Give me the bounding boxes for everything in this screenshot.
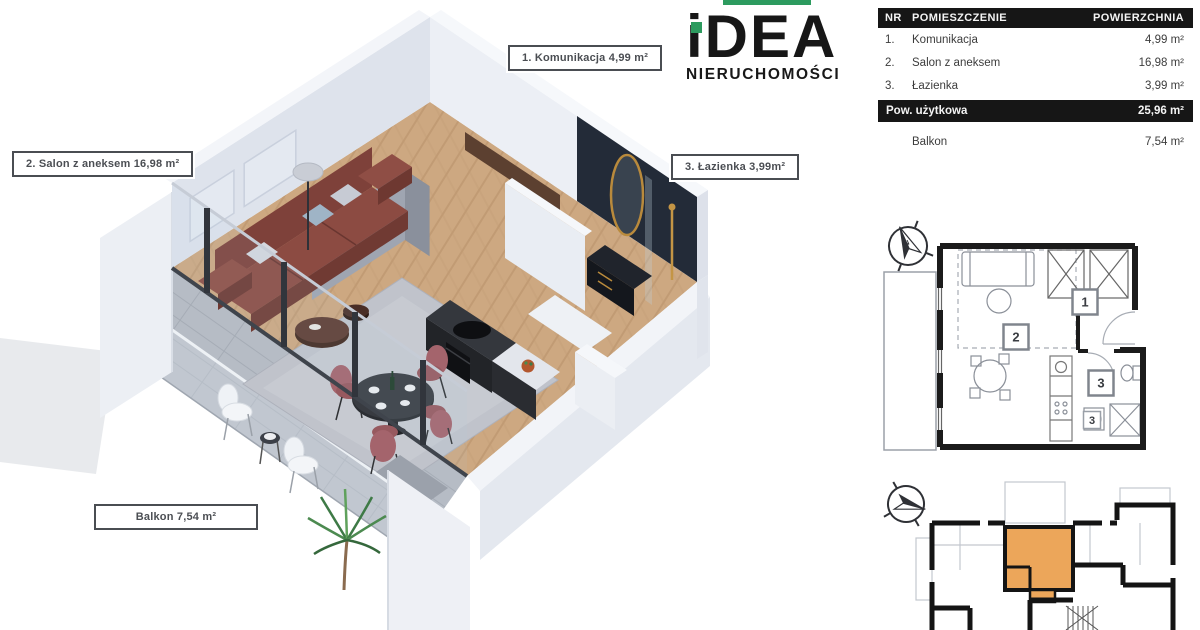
compass-icon: N [882,219,933,271]
area-table: NR POMIESZCZENIE POWIERZCHNIA 1. Komunik… [878,8,1193,153]
mirror [611,155,643,235]
row-room: Komunikacja [912,34,1145,46]
room-box-1: 1 [1081,295,1088,310]
label-komunikacja: 1. Komunikacja 4,99 m² [508,45,662,71]
outer-wall-left [100,192,172,418]
logo-green-dot-icon [691,22,702,33]
table-row: 3. Łazienka 3,99 m² [878,74,1193,97]
logo-brand: iDEA [686,8,876,65]
row-room: Łazienka [912,80,1145,92]
plan2d-walls [940,246,1146,447]
table-row: 1. Komunikacja 4,99 m² [878,28,1193,51]
row-nr: 1. [878,34,912,46]
logo-subtitle: NIERUCHOMOŚCI [686,66,876,84]
floorplan-3d [0,0,820,630]
balkon-area: 7,54 m² [1145,136,1193,148]
logo: iDEA NIERUCHOMOŚCI [686,8,876,84]
balkon-label: Balkon [912,136,1145,148]
floorplan-2d: N [870,198,1200,460]
header-room: POMIESZCZENIE [912,12,1093,24]
plan2d-furniture [958,250,1142,441]
header-nr: NR [878,12,912,24]
stair-core [1066,606,1098,630]
cooktop [453,321,491,339]
table-balkon-row: Balkon 7,54 m² [878,130,1193,153]
row-area: 16,98 m² [1139,57,1193,69]
row-nr: 2. [878,57,912,69]
label-balkon: Balkon 7,54 m² [94,504,258,530]
neighbour-slab [0,338,115,474]
row-room: Salon z aneksem [912,57,1139,69]
table-header: NR POMIESZCZENIE POWIERZCHNIA [878,8,1193,28]
summary-label: Pow. użytkowa [878,105,1138,117]
plan2d-balcony [884,272,936,450]
summary-area: 25,96 m² [1138,105,1193,117]
header-area: POWIERZCHNIA [1093,12,1193,24]
page: 1. Komunikacja 4,99 m² 2. Salon z anekse… [0,0,1200,630]
table-row: 2. Salon z aneksem 16,98 m² [878,51,1193,74]
room-box-3: 3 [1097,376,1104,391]
highlighted-unit [1005,527,1073,602]
label-lazienka: 3. Łazienka 3,99m² [671,154,799,180]
room-box-2: 2 [1012,330,1019,345]
building-plan [870,470,1200,630]
fruit-bowl [522,360,535,373]
row-area: 3,99 m² [1145,80,1193,92]
room-box-3-small: 3 [1089,415,1095,427]
row-nr: 3. [878,80,912,92]
table-summary-row: Pow. użytkowa 25,96 m² [878,100,1193,122]
label-salon: 2. Salon z aneksem 16,98 m² [12,151,193,177]
row-area: 4,99 m² [1145,34,1193,46]
compass-icon [884,482,930,527]
